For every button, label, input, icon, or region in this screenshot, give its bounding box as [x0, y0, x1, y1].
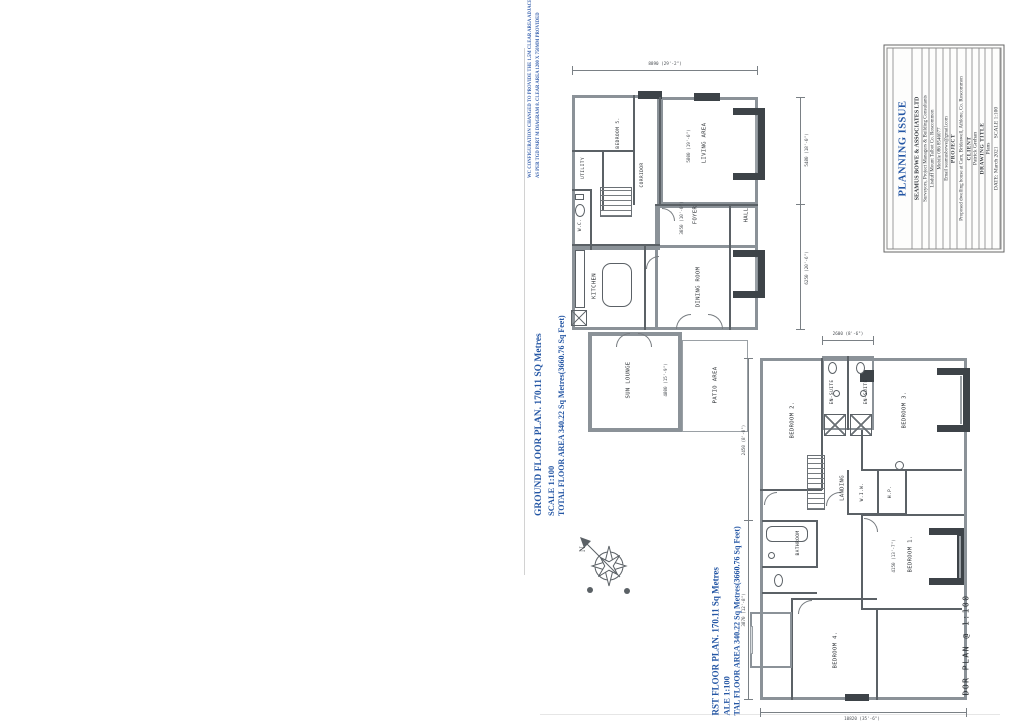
window — [959, 536, 961, 578]
dim-text: 6250 (20'-6") — [804, 251, 809, 284]
bay-window-wall — [758, 108, 765, 180]
dim-tick — [744, 358, 753, 359]
dim-line — [572, 70, 758, 71]
firm-name: SEAMUS BOWE & ASSOCIATES LTD — [913, 49, 923, 249]
room-label-landing: LANDING — [839, 475, 845, 501]
dim-text: 2600 (8'-6") — [833, 331, 864, 336]
dim-tick — [757, 66, 758, 75]
toilet — [856, 362, 865, 374]
partition — [572, 244, 660, 246]
dim-text: 2450 (8'-0") — [741, 425, 746, 456]
firm-email: Email seamusbowe@gmail.com — [944, 49, 951, 249]
room-label-wc: W.C. — [577, 219, 583, 232]
room-label-living: LIVING AREA — [701, 123, 707, 164]
dim-tick — [796, 97, 805, 98]
firm-mobile: Mobile 086 8546077 — [937, 49, 944, 249]
toilet — [575, 204, 585, 217]
room-label-patio: PATIO AREA — [712, 367, 718, 404]
client-value: Patrick Grehan — [973, 49, 980, 249]
ground-caption-title: GROUND FLOOR PLAN. 170.11 SQ Metres — [534, 308, 546, 516]
room-label-hall: HALL — [743, 208, 749, 223]
first-floor-side-label: DOR PLAN @ 1:100 — [962, 598, 979, 696]
title-block: PLANNING ISSUE SEAMUS BOWE & ASSOCIATES … — [884, 45, 1005, 253]
partition — [729, 205, 731, 330]
room-label-bedroom1: BEDROOM 1. — [907, 536, 913, 573]
drawing-title-value: Plans — [986, 49, 993, 249]
partition — [791, 598, 877, 600]
first-caption-area: TAL FLOOR AREA 340.22 Sq Metres(3660.76 … — [732, 521, 742, 716]
dim-tick — [966, 708, 967, 717]
firm-address: Lisduff Mount Talbot Co. Roscommon — [930, 49, 937, 249]
partition — [655, 204, 758, 206]
dim-tick — [760, 708, 761, 717]
window — [755, 116, 757, 172]
first-floor-plan: 2600 (8'-6") 2450 (8'-0") 3870 (12'-8") … — [742, 330, 992, 724]
window — [755, 258, 757, 290]
partition — [590, 189, 592, 250]
dim-tick — [572, 66, 573, 75]
room-label-wiw: W.I.W. — [859, 483, 865, 502]
ground-caption-area: TOTAL FLOOR AREA 340.22 Sq Metres(3660.7… — [557, 308, 567, 516]
partition — [905, 470, 907, 515]
compass-north-label: N — [578, 546, 587, 552]
room-label-ensuite1: EN-SUITE — [829, 379, 835, 404]
project-label: PROJECT — [951, 49, 958, 249]
partition — [644, 245, 646, 330]
first-caption-title: RST FLOOR PLAN. 170.11 Sq Metres — [711, 521, 722, 716]
partition — [876, 610, 878, 700]
dim-tick — [822, 336, 823, 345]
room-label-sun-lounge: SUN LOUNGE — [625, 362, 631, 399]
planning-status: PLANNING ISSUE — [894, 49, 913, 249]
partition — [816, 520, 818, 568]
bay-window-wall — [733, 173, 765, 180]
dim-text: 4800 (15'-9") — [663, 363, 668, 396]
wall-dark-segment — [845, 694, 869, 701]
scanned-floor-plan-sheet: WC CONFIGURATION CHANGED TO PROVIDE THE … — [0, 0, 1024, 724]
shower-tray — [824, 414, 846, 436]
first-caption-scale: ALE 1:100 — [722, 521, 733, 716]
bay-window-wall — [929, 578, 964, 585]
partition — [762, 566, 817, 568]
room-label-bathroom: BATHROOM — [795, 530, 801, 555]
dim-line — [822, 340, 874, 341]
room-label-bedroom4: BEDROOM 4. — [832, 632, 838, 669]
ground-floor-caption: GROUND FLOOR PLAN. 170.11 SQ Metres SCAL… — [534, 308, 582, 516]
dim-text: 8890 (29'-2") — [648, 61, 681, 66]
kitchen-counter — [575, 250, 585, 308]
project-value: Proposed dwelling house at Cam, Brideswe… — [958, 49, 967, 249]
room-label-utility: UTILITY — [580, 157, 586, 179]
wc-note-line2: AS PER TGD PART M DIAGRAM 8. CLEAR AREA … — [536, 84, 542, 178]
partition — [847, 356, 849, 430]
room-label-bedroom3: BEDROOM 3. — [901, 392, 907, 429]
room-label-bedroom5: BEDROOM 5. — [615, 117, 621, 148]
partition — [861, 514, 863, 610]
dim-line — [800, 97, 801, 330]
dim-text: 5800 (19'-0") — [686, 129, 691, 162]
page-fold-edge — [524, 48, 525, 575]
firm-subtitle: Surveyors, Project Managers & Building C… — [923, 49, 930, 249]
room-label-corridor: CORRIDOR — [639, 162, 645, 187]
partition — [572, 189, 592, 191]
first-floor-caption: RST FLOOR PLAN. 170.11 Sq Metres ALE 1:1… — [711, 521, 757, 716]
ground-caption-scale: SCALE 1:100 — [546, 308, 557, 516]
room-label-kitchen: KITCHEN — [591, 273, 597, 299]
room-label-dining: DINING ROOM — [695, 267, 701, 308]
kitchen-island — [602, 263, 632, 307]
staircase — [600, 187, 632, 217]
partition — [762, 592, 817, 594]
wc-compliance-note: WC CONFIGURATION CHANGED TO PROVIDE THE … — [527, 58, 547, 178]
partition — [659, 97, 661, 205]
room-label-hotpress: H.P. — [887, 486, 893, 499]
window — [960, 376, 962, 424]
dim-text: 10820 (35'-6") — [844, 716, 880, 721]
sink — [575, 194, 584, 200]
wc-note-line1: WC CONFIGURATION CHANGED TO PROVIDE THE … — [528, 84, 534, 178]
partition — [861, 430, 863, 471]
wall-dark-segment — [694, 93, 720, 101]
bathtub — [766, 526, 808, 542]
dim-text: 4150 (13'-7") — [891, 539, 896, 572]
date-scale-row: DATE: March 2021 SCALE 1:100 — [993, 49, 1001, 249]
toilet — [828, 362, 837, 374]
bay-window-wall — [963, 368, 970, 432]
compass-rose: N — [570, 524, 648, 602]
bay-window-wall — [733, 291, 765, 298]
toilet — [774, 574, 783, 587]
landing-window — [895, 461, 904, 470]
dim-tick — [873, 336, 874, 345]
bay-window-wall — [937, 425, 970, 432]
dim-line — [760, 712, 967, 713]
partition — [862, 514, 964, 516]
partition — [847, 470, 849, 515]
dim-text: 3050 (10'-0") — [679, 201, 684, 234]
sink — [768, 552, 775, 559]
partition — [762, 520, 817, 522]
partition — [877, 470, 879, 515]
room-label-bedroom2: BEDROOM 2. — [789, 402, 795, 439]
room-label-ensuite2: EN-SUITE — [863, 379, 869, 404]
room-label-foyer: FOYER — [692, 206, 698, 224]
dim-tick — [796, 204, 805, 205]
dim-text: 5480 (18'-0") — [804, 133, 809, 166]
title-block-table: PLANNING ISSUE SEAMUS BOWE & ASSOCIATES … — [887, 48, 1002, 250]
staircase — [807, 455, 825, 510]
